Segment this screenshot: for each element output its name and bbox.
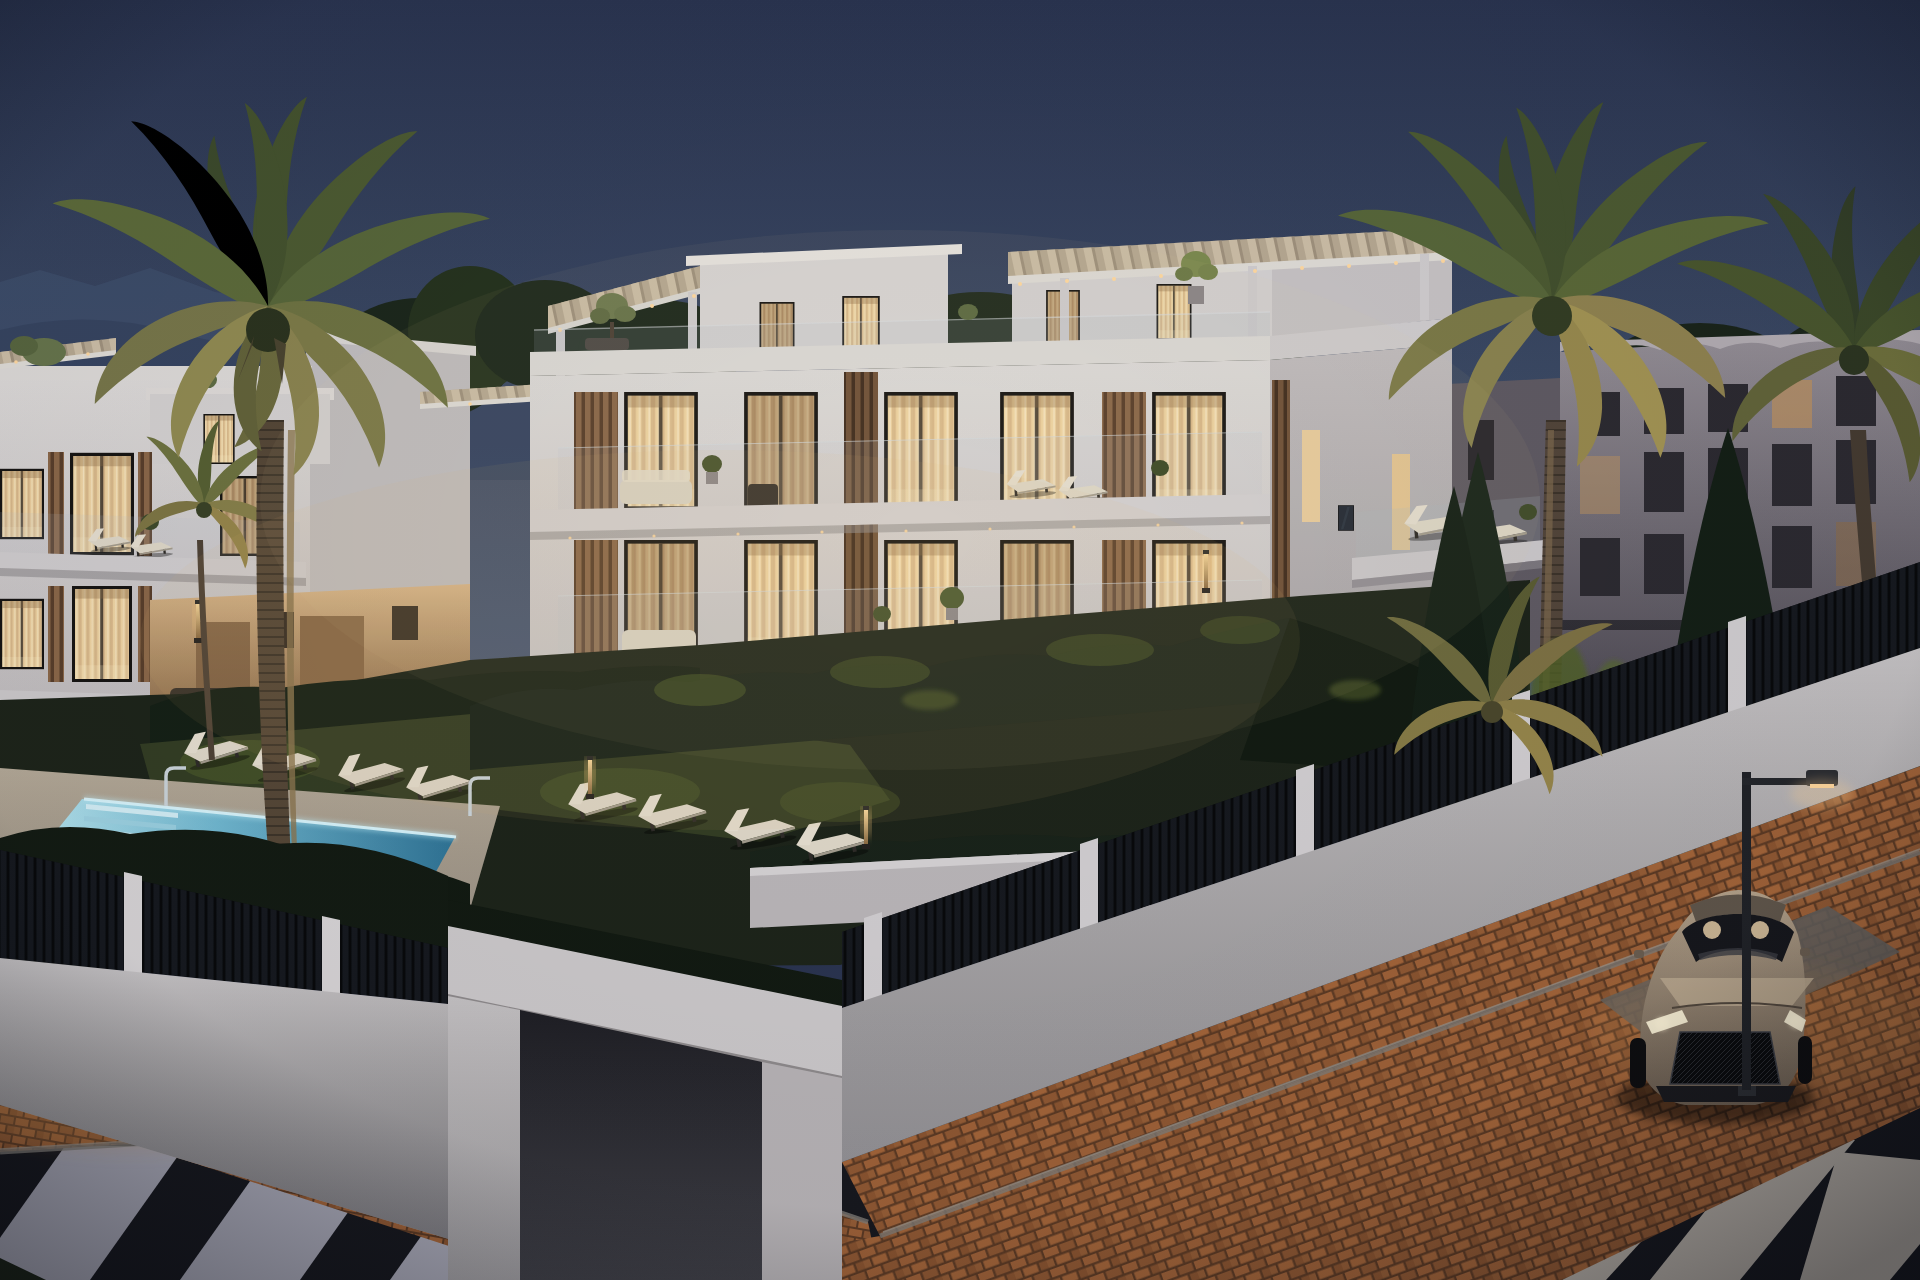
night-render-scene bbox=[0, 0, 1920, 1280]
vignette bbox=[0, 0, 1920, 1280]
render-canvas bbox=[0, 0, 1920, 1280]
